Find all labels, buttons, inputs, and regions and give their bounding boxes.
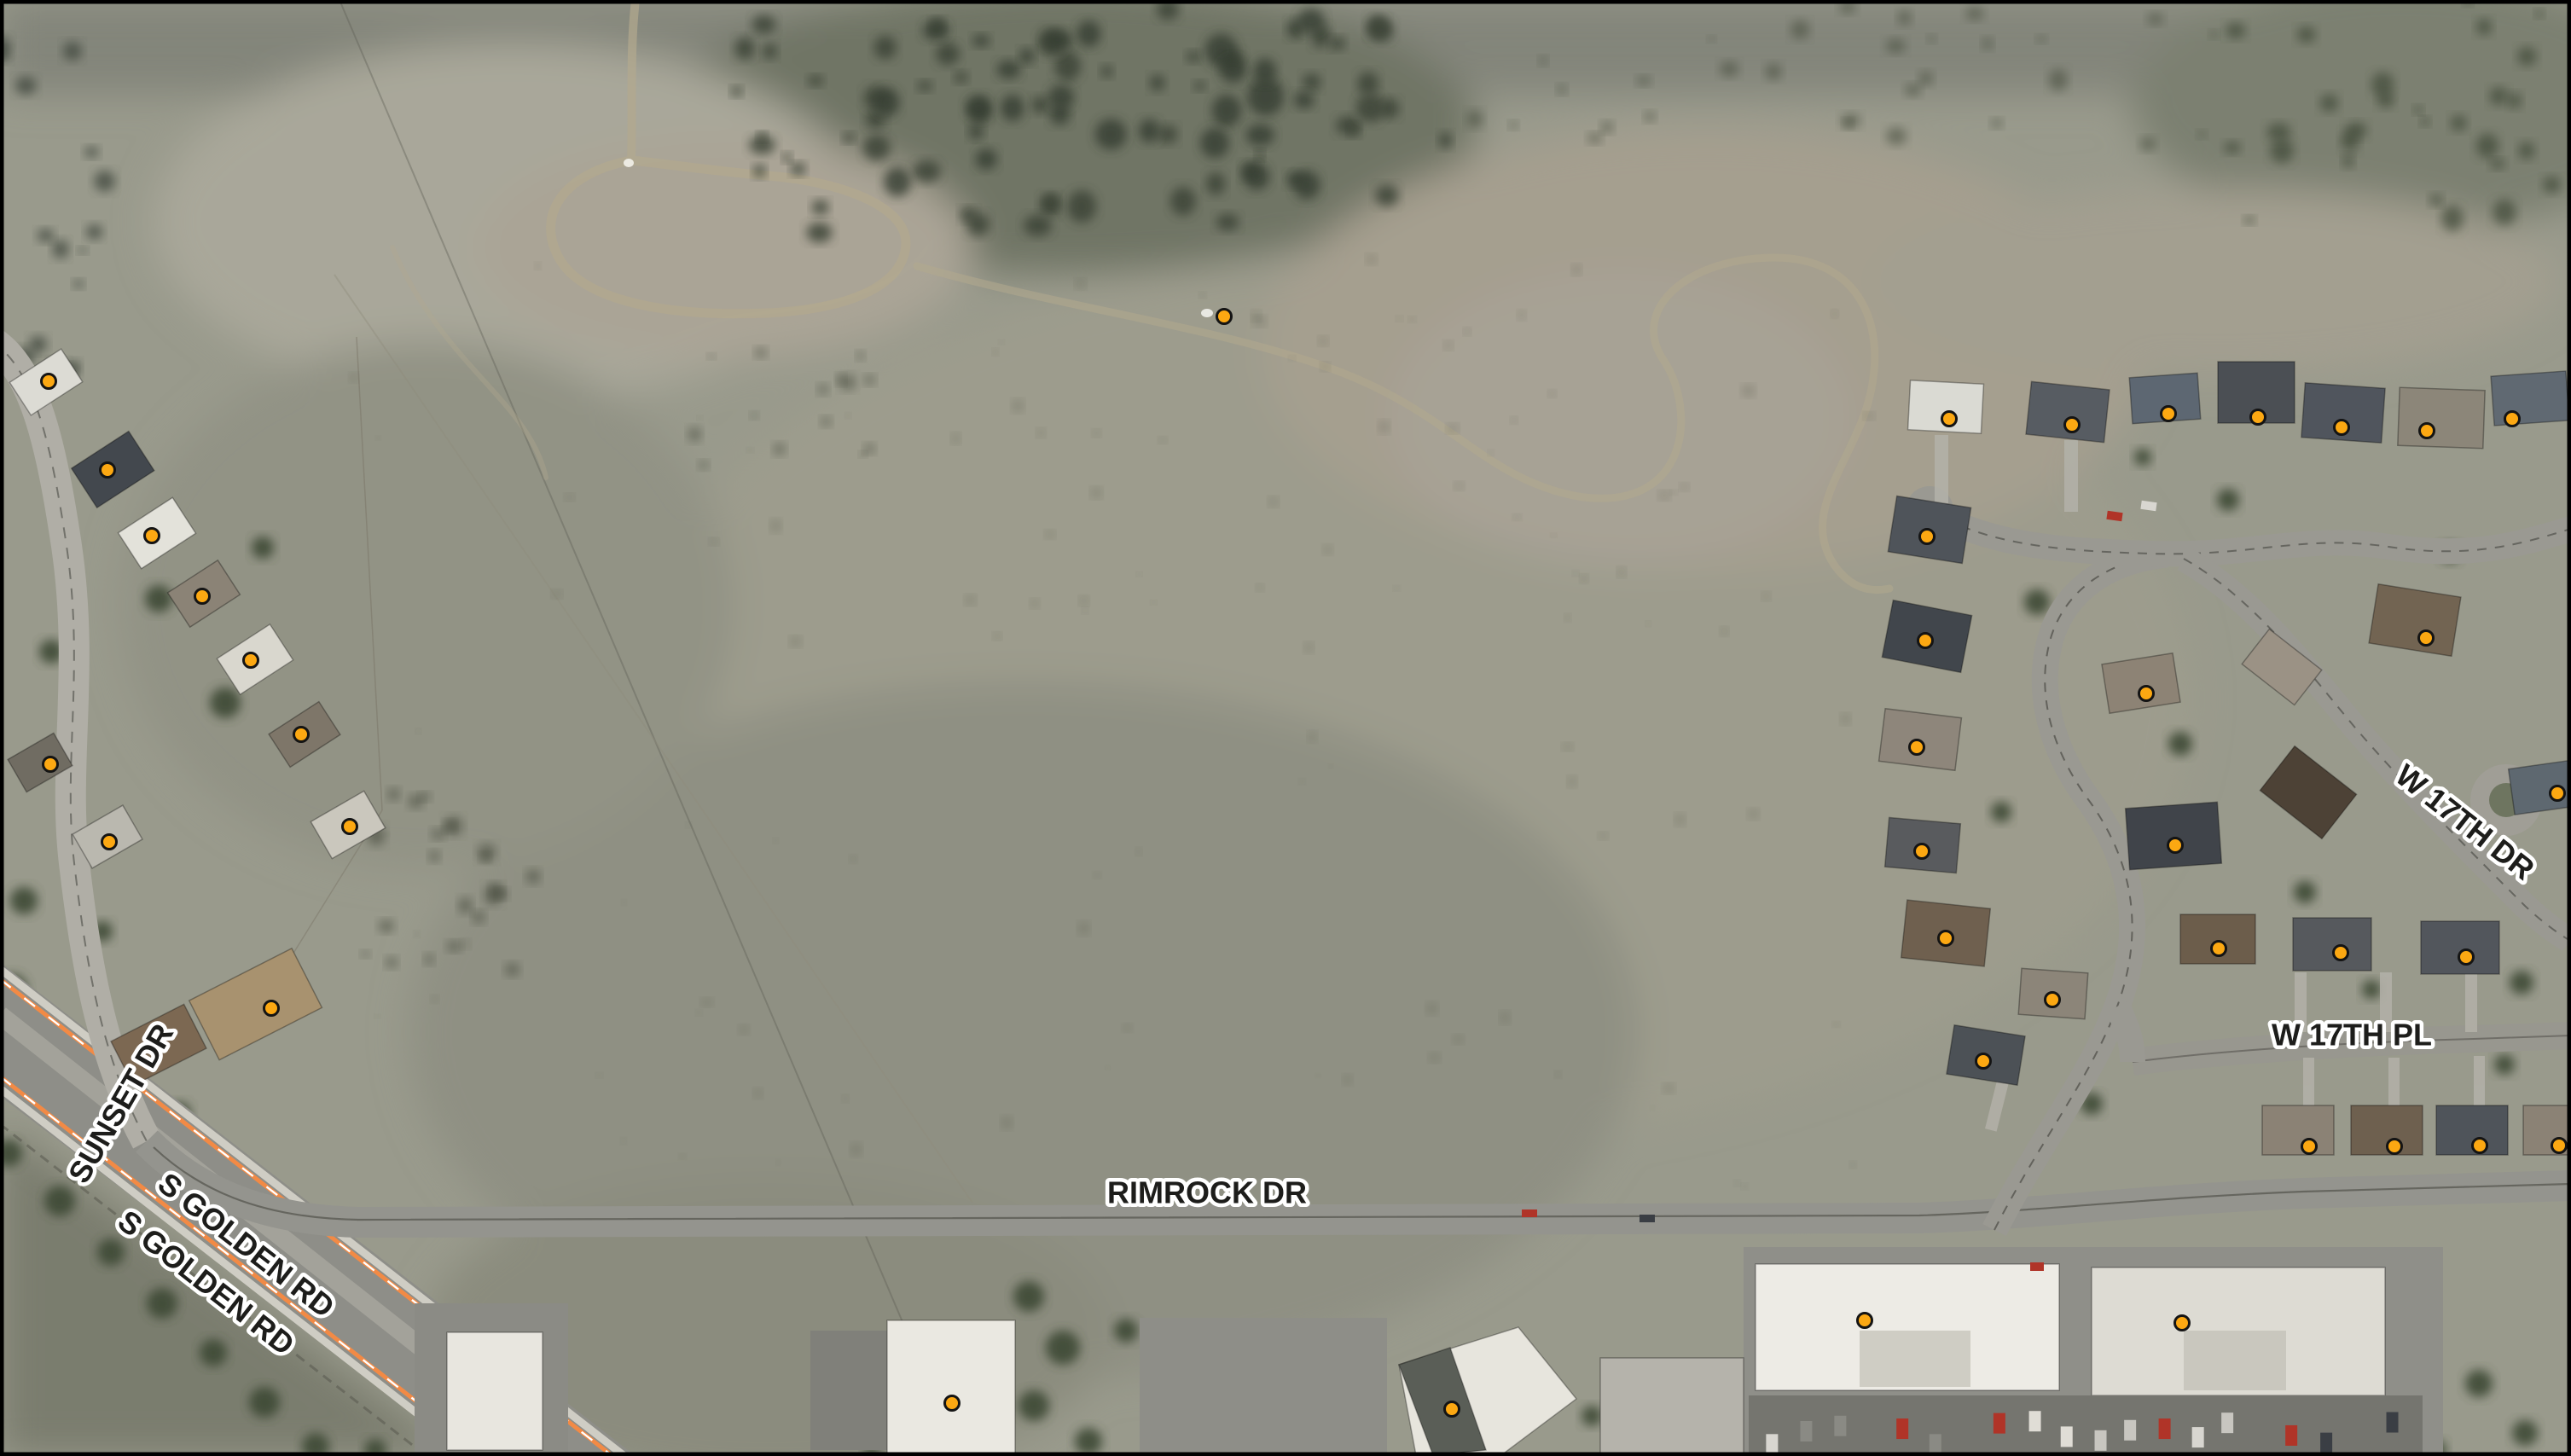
shrub <box>1024 215 1052 236</box>
shrub <box>2441 206 2463 231</box>
shrub <box>752 15 776 34</box>
shrub <box>1349 123 1361 136</box>
shrub <box>1762 593 1769 600</box>
shrub <box>1708 36 1715 42</box>
shrub <box>874 88 899 116</box>
address-point-marker[interactable] <box>2212 942 2226 956</box>
shrub <box>461 940 469 948</box>
address-point-marker[interactable] <box>945 1396 960 1411</box>
shrub <box>1790 20 1809 39</box>
address-point-marker[interactable] <box>2046 993 2060 1007</box>
shrub <box>1294 91 1315 108</box>
shrub <box>444 816 462 835</box>
address-point-marker[interactable] <box>1939 931 1953 946</box>
shrub <box>782 153 791 162</box>
tree <box>2512 1420 2538 1446</box>
address-point-marker[interactable] <box>2552 1139 2567 1153</box>
shrub <box>2508 93 2522 108</box>
shrub <box>2476 19 2492 35</box>
shrub <box>1898 10 1912 25</box>
tree <box>2134 449 2151 466</box>
address-point-marker[interactable] <box>1918 634 1933 648</box>
shrub <box>15 77 37 95</box>
shrub <box>1043 30 1072 50</box>
car <box>1800 1421 1812 1441</box>
tree <box>2362 980 2381 999</box>
shrub <box>1651 1106 1654 1111</box>
shrub <box>2451 115 2467 131</box>
shrub <box>1601 122 1613 133</box>
address-point-marker[interactable] <box>1858 1314 1872 1328</box>
shrub <box>2270 138 2294 163</box>
address-point-marker[interactable] <box>44 757 58 772</box>
shrub <box>955 72 968 83</box>
shrub <box>416 728 421 734</box>
car <box>1834 1416 1846 1436</box>
shrub <box>1464 328 1470 335</box>
address-point-marker[interactable] <box>2162 407 2176 421</box>
shrub <box>1079 923 1089 934</box>
shrub <box>2147 13 2163 25</box>
shrub <box>1454 1035 1463 1043</box>
shrub <box>1194 81 1206 90</box>
shrub <box>1742 1184 1747 1189</box>
shrub <box>993 350 998 356</box>
shrub <box>1092 488 1101 497</box>
tree <box>145 585 172 612</box>
shrub <box>1212 95 1242 127</box>
shrub <box>966 595 975 605</box>
shrub <box>596 1073 602 1077</box>
address-point-marker[interactable] <box>1915 844 1930 859</box>
shrub <box>496 889 508 899</box>
shrub <box>1290 356 1295 360</box>
shrub <box>38 229 54 241</box>
shrub <box>754 1089 762 1098</box>
tree <box>2294 881 2316 903</box>
shrub <box>843 133 855 143</box>
shrub <box>2209 30 2218 38</box>
shrub <box>1123 1024 1132 1031</box>
tree <box>2217 489 2239 511</box>
shrub <box>1564 744 1573 751</box>
tree <box>2168 732 2192 756</box>
shrub <box>702 999 712 1006</box>
address-point-marker[interactable] <box>2551 786 2565 801</box>
shrub <box>2490 87 2509 106</box>
shrub <box>1659 491 1669 499</box>
car <box>1766 1434 1778 1454</box>
address-point-marker[interactable] <box>102 835 117 850</box>
shrub <box>860 451 867 457</box>
shrub <box>1369 19 1394 42</box>
shrub <box>757 132 767 142</box>
shrub <box>431 995 438 1001</box>
shrub <box>2297 26 2316 43</box>
address-point-marker[interactable] <box>2302 1140 2317 1154</box>
shrub <box>505 963 519 976</box>
tree <box>2024 589 2050 615</box>
shrub <box>2244 217 2255 224</box>
shrub <box>1054 51 1081 81</box>
shrub <box>1551 533 1556 537</box>
address-point-marker[interactable] <box>2473 1139 2487 1153</box>
shrub <box>2371 72 2394 96</box>
tree <box>1013 1281 1044 1312</box>
shrub <box>1379 421 1389 432</box>
shrub <box>1256 150 1264 160</box>
shrub <box>1305 643 1313 652</box>
shrub <box>1991 119 2002 128</box>
shrub <box>480 853 490 861</box>
shrub <box>1324 546 1332 554</box>
shrub <box>1850 1162 1855 1168</box>
shrub <box>1749 809 1758 818</box>
tree <box>1581 1406 1602 1426</box>
tree <box>10 887 38 914</box>
shrub <box>731 86 742 96</box>
shrub <box>1216 214 1239 231</box>
shrub <box>845 413 850 418</box>
shrub <box>414 931 419 937</box>
shrub <box>1095 119 1127 149</box>
address-point-marker[interactable] <box>195 589 210 604</box>
shrub <box>1396 316 1402 322</box>
shrub <box>1670 490 1676 495</box>
shrub <box>755 347 766 357</box>
shrub <box>1645 112 1655 122</box>
shrub <box>1675 815 1684 825</box>
tree <box>1019 1390 1049 1421</box>
shrub <box>1030 600 1038 607</box>
shrub <box>1409 316 1415 322</box>
shrub <box>1044 195 1059 211</box>
address-point-marker[interactable] <box>2388 1140 2402 1154</box>
shrub <box>1489 450 1494 455</box>
shrub <box>1865 413 1874 420</box>
tree <box>2494 1054 2515 1075</box>
shrub <box>698 416 702 421</box>
car <box>1930 1434 1941 1454</box>
shrub <box>1094 873 1100 878</box>
shrub <box>774 838 778 843</box>
shrub <box>2197 131 2207 138</box>
address-point-marker[interactable] <box>145 529 160 543</box>
shrub <box>864 375 875 386</box>
car <box>2159 1418 2171 1439</box>
shrub <box>1919 72 1933 86</box>
shrub <box>350 374 357 381</box>
shrub <box>1002 1117 1012 1128</box>
address-point-marker[interactable] <box>2139 687 2154 701</box>
car <box>1522 1209 1537 1217</box>
shrub <box>1319 337 1326 345</box>
shrub <box>2517 47 2536 66</box>
tree <box>2510 971 2533 995</box>
shrub <box>836 374 844 385</box>
shrub <box>763 44 776 59</box>
car <box>2095 1430 2107 1451</box>
shrub <box>361 951 369 958</box>
shrub <box>696 1010 701 1015</box>
shrub <box>473 911 485 924</box>
aerial-map-image: SUNSET DRS GOLDEN RDS GOLDEN RDRIMROCK D… <box>0 0 2571 1456</box>
shrub <box>679 1154 685 1159</box>
shrub <box>1101 66 1113 78</box>
shrub <box>1067 190 1096 223</box>
shrub <box>376 437 380 440</box>
address-point-marker[interactable] <box>2251 410 2266 425</box>
shrub <box>1555 1071 1560 1077</box>
shrub <box>1375 185 1398 206</box>
shrub <box>952 434 960 444</box>
shrub <box>425 954 434 965</box>
car <box>1896 1418 1908 1439</box>
shrub <box>776 1160 780 1164</box>
shrub <box>1077 280 1086 288</box>
shrub <box>1013 400 1023 411</box>
shrub <box>843 1095 849 1101</box>
shrub <box>994 633 1001 639</box>
address-point-marker[interactable] <box>244 653 258 668</box>
shrub <box>1549 391 1556 397</box>
shrub <box>1833 1022 1839 1026</box>
shrub <box>708 354 716 359</box>
shrub <box>1680 484 1688 490</box>
terrain-layer <box>0 0 2571 1456</box>
shrub <box>699 461 708 469</box>
shrub <box>447 941 461 951</box>
shrub <box>1886 127 1906 145</box>
shrub <box>1599 832 1607 838</box>
shrub <box>1905 84 1921 96</box>
shrub <box>429 851 440 862</box>
shrub <box>1330 37 1345 50</box>
shrub <box>1151 600 1156 604</box>
shrub <box>1329 764 1333 769</box>
shrub <box>1448 425 1458 432</box>
shrub <box>1886 39 1906 54</box>
address-point-marker[interactable] <box>42 374 56 389</box>
shrub <box>536 263 541 269</box>
shrub <box>1743 386 1754 397</box>
shrub <box>874 36 897 59</box>
shrub <box>1093 430 1100 436</box>
shrub <box>1206 172 1225 194</box>
shrub <box>1200 128 1229 159</box>
car <box>2061 1426 2073 1447</box>
shrub <box>1842 714 1850 723</box>
shrub <box>2519 142 2535 159</box>
shrub <box>1256 584 1263 590</box>
shrub <box>1518 311 1525 319</box>
shrub <box>740 1025 748 1033</box>
shrub <box>1568 777 1576 786</box>
car <box>2124 1420 2136 1441</box>
shrub <box>686 822 691 827</box>
shrub <box>1082 608 1088 613</box>
shrub <box>1766 64 1782 80</box>
shrub <box>2420 118 2429 126</box>
shrub <box>1253 58 1276 84</box>
shrub <box>1046 531 1054 537</box>
shrub <box>2342 154 2353 167</box>
shrub <box>379 920 394 932</box>
shrub <box>1720 61 1738 77</box>
address-point-marker[interactable] <box>1942 412 1957 426</box>
shrub <box>1253 316 1265 326</box>
tree <box>147 1288 177 1319</box>
shrub <box>856 351 864 360</box>
tree <box>44 1186 75 1216</box>
car <box>2029 1411 2041 1431</box>
shrub <box>2226 22 2245 38</box>
shrub <box>94 171 115 192</box>
shrub <box>1303 73 1321 90</box>
shrub <box>1637 76 1651 85</box>
shrub <box>1581 575 1587 582</box>
shrub <box>791 637 801 647</box>
shrub <box>1241 162 1259 180</box>
address-point-marker[interactable] <box>1976 1054 1991 1069</box>
shrub <box>1269 497 1278 506</box>
shrub <box>1455 483 1464 490</box>
address-point-marker[interactable] <box>1920 530 1935 544</box>
shrub <box>1587 133 1601 143</box>
shrub <box>1048 85 1074 109</box>
shrub <box>969 124 984 139</box>
address-point-marker[interactable] <box>2459 950 2474 965</box>
shrub <box>2535 9 2544 18</box>
shrub <box>386 832 390 836</box>
shrub <box>747 448 753 452</box>
shrub <box>1663 1084 1674 1093</box>
shrub <box>621 1139 625 1144</box>
shrub <box>2476 134 2498 159</box>
street-label: RIMROCK DR <box>1107 1175 1307 1210</box>
shrub <box>1445 342 1453 350</box>
shrub <box>1721 628 1727 635</box>
shrub <box>1300 779 1305 784</box>
shrub <box>923 20 949 40</box>
address-point-marker[interactable] <box>1910 740 1924 755</box>
car <box>1640 1215 1655 1222</box>
tree <box>252 537 274 559</box>
address-point-marker[interactable] <box>2334 946 2348 960</box>
shrub <box>86 224 102 240</box>
shrub <box>807 223 833 242</box>
shrub <box>851 1144 861 1155</box>
shrub <box>1928 35 1936 43</box>
shrub <box>2493 200 2516 225</box>
shrub <box>73 280 84 288</box>
tree <box>200 1339 227 1366</box>
shrub <box>553 590 561 598</box>
shrub <box>976 148 997 170</box>
address-point-marker[interactable] <box>1217 310 1232 324</box>
map-viewport[interactable]: SUNSET DRS GOLDEN RDS GOLDEN RDRIMROCK D… <box>0 0 2571 1456</box>
shrub <box>1500 1012 1509 1023</box>
shrub <box>526 869 540 883</box>
shrub <box>1293 171 1320 200</box>
shrub <box>2320 94 2338 112</box>
shrub <box>2049 69 2068 91</box>
shrub <box>818 385 828 395</box>
car <box>2285 1425 2297 1446</box>
address-point-marker[interactable] <box>1445 1402 1460 1417</box>
address-point-marker[interactable] <box>2420 424 2435 438</box>
address-point-marker[interactable] <box>343 820 357 834</box>
address-point-marker[interactable] <box>294 728 309 742</box>
shrub <box>2490 159 2504 169</box>
shrub <box>1573 571 1578 577</box>
shrub <box>1367 255 1376 264</box>
shrub <box>972 35 990 48</box>
tree <box>1114 1319 1138 1343</box>
address-point-marker[interactable] <box>2168 838 2183 853</box>
shrub <box>771 520 781 531</box>
address-point-marker[interactable] <box>2335 421 2349 435</box>
shrub <box>688 427 701 442</box>
shrub <box>1394 586 1399 590</box>
shrub <box>913 160 940 183</box>
tree <box>1991 802 2011 822</box>
shrub <box>1315 1074 1320 1077</box>
shrub <box>821 417 831 426</box>
shrub <box>997 61 1021 79</box>
shrub <box>1137 572 1141 576</box>
shrub <box>1572 265 1581 275</box>
shrub <box>1246 124 1274 146</box>
address-point-marker[interactable] <box>2065 418 2080 432</box>
shrub <box>1618 568 1625 577</box>
shrub <box>1509 121 1518 129</box>
tree <box>249 1387 280 1418</box>
shrub <box>2346 122 2367 139</box>
address-point-marker[interactable] <box>2505 412 2520 426</box>
car <box>2387 1412 2399 1433</box>
shrub <box>753 165 765 177</box>
shrub <box>1150 75 1165 91</box>
shrub <box>1106 1066 1110 1070</box>
shrub <box>1077 20 1100 47</box>
shrub <box>812 200 828 215</box>
shrub <box>1159 438 1167 443</box>
shrub <box>566 495 574 501</box>
shrub <box>1080 597 1088 605</box>
shrub <box>884 167 911 196</box>
shrub <box>622 900 626 904</box>
shrub <box>850 856 857 862</box>
car <box>2320 1433 2332 1453</box>
shrub <box>2036 36 2046 44</box>
shrub <box>1001 95 1024 121</box>
car <box>2030 1262 2044 1271</box>
shrub <box>388 788 400 800</box>
shrub <box>1965 7 1983 20</box>
address-point-marker[interactable] <box>101 463 115 478</box>
shrub <box>409 795 423 809</box>
address-point-marker[interactable] <box>2175 1316 2190 1331</box>
shrub <box>918 81 932 91</box>
shrub <box>1136 849 1141 856</box>
address-point-marker[interactable] <box>2419 631 2434 646</box>
shrub <box>1139 119 1160 143</box>
tree <box>2465 1370 2493 1397</box>
shrub <box>1199 293 1205 298</box>
shrub <box>432 828 444 839</box>
address-point-marker[interactable] <box>264 1001 279 1016</box>
